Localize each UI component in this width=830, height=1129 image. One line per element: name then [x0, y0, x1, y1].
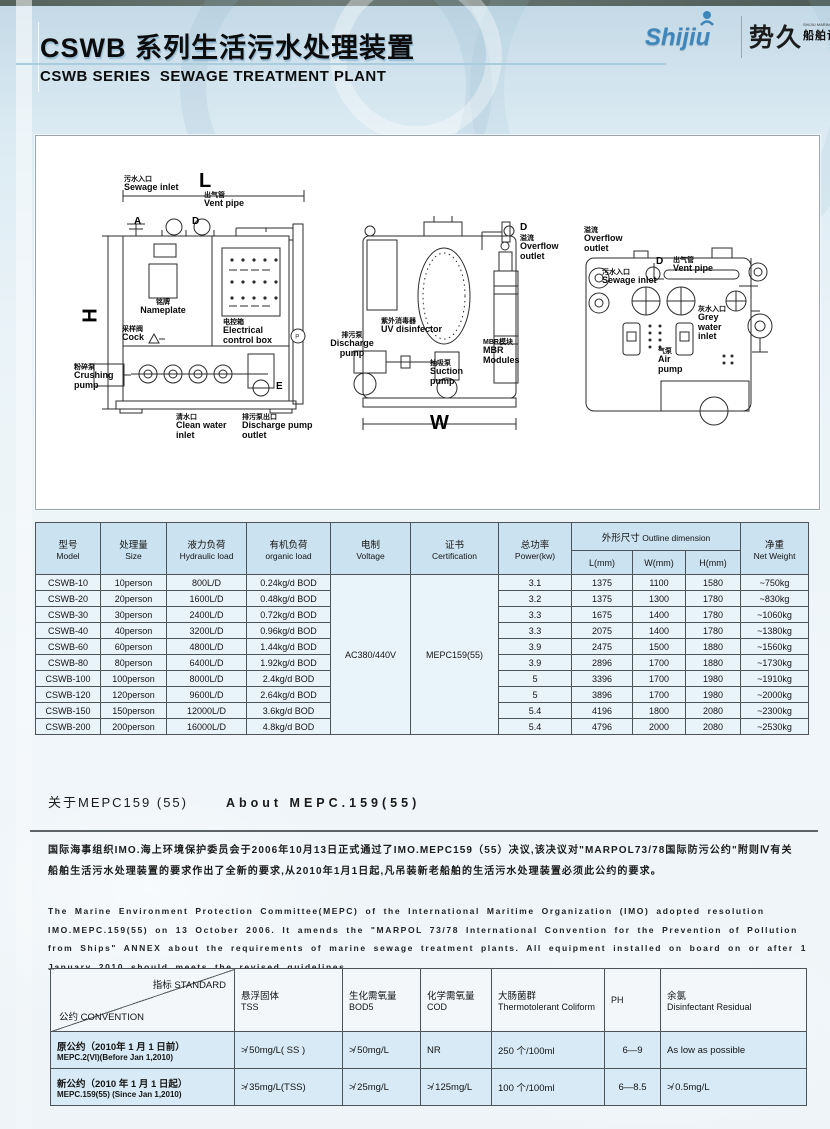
cell-model: CSWB-80	[36, 655, 101, 671]
cell-organic-load: 0.24kg/d BOD	[247, 575, 331, 591]
page-title-en: CSWB SERIES SEWAGE TREATMENT PLANT	[40, 68, 386, 85]
label-discharge-pump-side: 排污泵 Discharge pump	[321, 332, 383, 358]
standard-value-cell: As low as possible	[661, 1032, 807, 1069]
cell-model: CSWB-20	[36, 591, 101, 607]
cell-size: 10person	[101, 575, 167, 591]
cell-hydraulic-load: 16000L/D	[167, 719, 247, 735]
col-header-certification: 证书Certification	[411, 523, 499, 575]
col-header-voltage: 电制Voltage	[331, 523, 411, 575]
cell-hydraulic-load: 12000L/D	[167, 703, 247, 719]
col-header-coliform: 大肠菌群Thermotolerant Coliform	[492, 969, 605, 1032]
dim-a-label: A	[134, 216, 141, 227]
left-band	[16, 0, 32, 1129]
cell-length: 4196	[572, 703, 633, 719]
cell-power: 5.4	[499, 703, 572, 719]
cell-hydraulic-load: 3200L/D	[167, 623, 247, 639]
cell-size: 80person	[101, 655, 167, 671]
standard-value-cell: 6—9	[605, 1032, 661, 1069]
cell-length: 1675	[572, 607, 633, 623]
dim-d-label-front: D	[192, 216, 199, 227]
cell-hydraulic-load: 8000L/D	[167, 671, 247, 687]
cell-height: 1880	[686, 655, 741, 671]
cell-height: 1880	[686, 639, 741, 655]
standards-table-row: 新公约（2010 年 1 月 1 日起）MEPC.159(55) (Since …	[51, 1069, 807, 1106]
standard-value-cell: 100 个/100ml	[492, 1069, 605, 1106]
col-header-l-mm: L(mm)	[572, 551, 633, 575]
cell-hydraulic-load: 9600L/D	[167, 687, 247, 703]
mepc-paragraph-cn: 国际海事组织IMO.海上环境保护委员会于2006年10月13日正式通过了IMO.…	[48, 840, 800, 882]
label-air-pump: 气泵 Air pump	[658, 348, 696, 374]
label-overflow-outlet-top: 溢流 Overflow outlet	[584, 227, 644, 253]
cell-length: 3896	[572, 687, 633, 703]
mepc-heading-cn: 关于MEPC159 (55)	[48, 795, 188, 810]
cell-net-weight: ~1060kg	[741, 607, 809, 623]
cell-width: 1700	[633, 655, 686, 671]
cell-size: 20person	[101, 591, 167, 607]
cell-net-weight: ~1730kg	[741, 655, 809, 671]
page-title-cn: CSWB 系列生活污水处理装置	[40, 26, 415, 65]
label-vent-pipe-front: 出气管 Vent pipe	[204, 192, 244, 209]
cell-size: 120person	[101, 687, 167, 703]
cell-height: 1780	[686, 607, 741, 623]
logo-person-icon	[698, 10, 716, 26]
label-electrical-control-box: 电控箱 Electrical control box	[223, 319, 285, 345]
svg-text:P: P	[295, 335, 299, 341]
col-header-net-weight: 净重Net Weight	[741, 523, 809, 575]
standard-value-cell: NR	[421, 1032, 492, 1069]
cell-width: 1700	[633, 687, 686, 703]
label-grey-water-inlet: 灰水入口 Grey water inlet	[698, 306, 740, 342]
dim-e-label: E	[276, 381, 283, 392]
label-uv-disinfector: 紫外消毒器 UV disinfector	[381, 318, 466, 335]
standard-value-cell: ≯ 50mg/L( SS )	[235, 1032, 343, 1069]
standard-value-cell: 250 个/100ml	[492, 1032, 605, 1069]
cell-height: 1980	[686, 687, 741, 703]
cell-model: CSWB-200	[36, 719, 101, 735]
cell-certification: MEPC159(55)	[411, 575, 499, 735]
col-header-outline-dimension: 外形尺寸 Outline dimension	[572, 523, 741, 551]
label-cock: 采样阀 Cock	[122, 326, 144, 343]
standard-value-cell: ≯ 35mg/L(TSS)	[235, 1069, 343, 1106]
cell-power: 5.4	[499, 719, 572, 735]
cell-organic-load: 4.8kg/d BOD	[247, 719, 331, 735]
logo-subtitle: SHIJIU MARINE EQUIPT 船舶设备	[803, 22, 830, 43]
dim-d-label-top: D	[656, 256, 663, 267]
standard-value-cell: ≯ 0.5mg/L	[661, 1069, 807, 1106]
dim-length-label: L	[199, 170, 211, 193]
cell-net-weight: ~1560kg	[741, 639, 809, 655]
label-crushing-pump: 粉碎泵 Crushing pump	[74, 364, 126, 390]
cell-length: 2896	[572, 655, 633, 671]
cell-length: 4796	[572, 719, 633, 735]
cell-height: 2080	[686, 719, 741, 735]
cell-power: 3.3	[499, 623, 572, 639]
cell-height: 1580	[686, 575, 741, 591]
spec-table: 型号Model 处理量Size 液力负荷Hydraulic load 有机负荷o…	[35, 522, 809, 735]
standard-value-cell: 6—8.5	[605, 1069, 661, 1106]
cell-organic-load: 3.6kg/d BOD	[247, 703, 331, 719]
technical-drawings-panel: P	[35, 135, 820, 510]
cell-width: 1400	[633, 623, 686, 639]
cell-size: 200person	[101, 719, 167, 735]
cell-power: 3.2	[499, 591, 572, 607]
cell-power: 3.1	[499, 575, 572, 591]
mepc-rule	[30, 830, 818, 832]
header-rule	[16, 63, 666, 65]
dim-height-label: H	[80, 308, 103, 322]
cell-power: 3.3	[499, 607, 572, 623]
cell-model: CSWB-100	[36, 671, 101, 687]
standard-value-cell: ≯ 25mg/L	[343, 1069, 421, 1106]
cell-width: 2000	[633, 719, 686, 735]
logo-brand-cn: 势久	[749, 18, 803, 54]
standards-table-row: 原公约（2010年 1 月 1 日前）MEPC.2(VI)(Before Jan…	[51, 1032, 807, 1069]
col-header-model: 型号Model	[36, 523, 101, 575]
col-header-size: 处理量Size	[101, 523, 167, 575]
logo-brand-en: Shijiu	[645, 24, 710, 52]
cell-height: 2080	[686, 703, 741, 719]
cell-net-weight: ~2300kg	[741, 703, 809, 719]
cell-model: CSWB-120	[36, 687, 101, 703]
cell-organic-load: 1.92kg/d BOD	[247, 655, 331, 671]
cell-power: 3.9	[499, 655, 572, 671]
cell-size: 30person	[101, 607, 167, 623]
cell-length: 3396	[572, 671, 633, 687]
cell-length: 1375	[572, 591, 633, 607]
label-overflow-outlet-side: 溢流 Overflow outlet	[520, 235, 575, 261]
logo-subtitle-cn: 船舶设备	[803, 27, 830, 43]
cell-model: CSWB-30	[36, 607, 101, 623]
standard-value-cell: ≯ 125mg/L	[421, 1069, 492, 1106]
cell-length: 2075	[572, 623, 633, 639]
cell-organic-load: 0.48kg/d BOD	[247, 591, 331, 607]
cell-net-weight: ~1910kg	[741, 671, 809, 687]
cell-height: 1980	[686, 671, 741, 687]
col-header-ph: PH	[605, 969, 661, 1032]
cell-size: 40person	[101, 623, 167, 639]
label-sewage-inlet-top: 污水入口 Sewage inlet	[602, 269, 657, 286]
cell-organic-load: 2.4kg/d BOD	[247, 671, 331, 687]
cell-width: 1800	[633, 703, 686, 719]
label-discharge-pump-outlet: 排污泵出口 Discharge pump outlet	[242, 414, 327, 440]
cell-power: 3.9	[499, 639, 572, 655]
cell-length: 1375	[572, 575, 633, 591]
mepc-section-heading: 关于MEPC159 (55)About MEPC.159(55)	[48, 792, 420, 811]
cell-hydraulic-load: 800L/D	[167, 575, 247, 591]
cell-length: 2475	[572, 639, 633, 655]
cell-hydraulic-load: 6400L/D	[167, 655, 247, 671]
cell-model: CSWB-10	[36, 575, 101, 591]
header-divider	[38, 22, 39, 92]
col-header-hydraulic-load: 液力负荷Hydraulic load	[167, 523, 247, 575]
label-mbr-modules: MBR模块 MBR Modules	[483, 339, 538, 365]
cell-hydraulic-load: 1600L/D	[167, 591, 247, 607]
col-header-organic-load: 有机负荷organic load	[247, 523, 331, 575]
mepc-heading-en: About MEPC.159(55)	[226, 796, 420, 810]
cell-organic-load: 1.44kg/d BOD	[247, 639, 331, 655]
label-vent-pipe-top: 出气管 Vent pipe	[673, 257, 713, 274]
corner-header: 指标 STANDARD 公约 CONVENTION	[51, 969, 235, 1032]
cell-width: 1300	[633, 591, 686, 607]
cell-organic-load: 2.64kg/d BOD	[247, 687, 331, 703]
convention-row-label: 原公约（2010年 1 月 1 日前）MEPC.2(VI)(Before Jan…	[51, 1032, 235, 1069]
convention-row-label: 新公约（2010 年 1 月 1 日起）MEPC.159(55) (Since …	[51, 1069, 235, 1106]
cell-net-weight: ~750kg	[741, 575, 809, 591]
cell-width: 1500	[633, 639, 686, 655]
col-header-w-mm: W(mm)	[633, 551, 686, 575]
col-header-power: 总功率Power(kw)	[499, 523, 572, 575]
cell-width: 1700	[633, 671, 686, 687]
cell-width: 1100	[633, 575, 686, 591]
cell-height: 1780	[686, 623, 741, 639]
logo-separator	[741, 16, 742, 58]
cell-height: 1780	[686, 591, 741, 607]
cell-size: 100person	[101, 671, 167, 687]
dim-width-label: W	[430, 412, 449, 435]
cell-model: CSWB-60	[36, 639, 101, 655]
col-header-residual: 余氯Disinfectant Residual	[661, 969, 807, 1032]
cell-model: CSWB-150	[36, 703, 101, 719]
top-band	[0, 0, 830, 6]
cell-size: 60person	[101, 639, 167, 655]
label-sewage-inlet-front: 污水入口 Sewage inlet	[124, 176, 179, 193]
cell-model: CSWB-40	[36, 623, 101, 639]
cell-hydraulic-load: 2400L/D	[167, 607, 247, 623]
corner-convention-label: 公约 CONVENTION	[59, 1009, 144, 1023]
cell-hydraulic-load: 4800L/D	[167, 639, 247, 655]
cell-net-weight: ~2530kg	[741, 719, 809, 735]
mepc-paragraph-en: The Marine Environment Protection Commit…	[48, 902, 808, 976]
cell-net-weight: ~1380kg	[741, 623, 809, 639]
company-logo: Shijiu 势久 SHIJIU MARINE EQUIPT 船舶设备	[645, 12, 820, 62]
cell-width: 1400	[633, 607, 686, 623]
cell-organic-load: 0.96kg/d BOD	[247, 623, 331, 639]
spec-table-row: CSWB-1010person800L/D0.24kg/d BODAC380/4…	[36, 575, 809, 591]
cell-net-weight: ~830kg	[741, 591, 809, 607]
label-clean-water-inlet: 清水口 Clean water inlet	[176, 414, 238, 440]
cell-power: 5	[499, 671, 572, 687]
page: CSWB 系列生活污水处理装置 CSWB SERIES SEWAGE TREAT…	[0, 0, 830, 1129]
col-header-cod: 化学需氧量COD	[421, 969, 492, 1032]
label-suction-pump: 抽吸泵 Suction pump	[430, 360, 480, 386]
cell-net-weight: ~2000kg	[741, 687, 809, 703]
dim-d-label-side: D	[520, 222, 527, 233]
cell-power: 5	[499, 687, 572, 703]
cell-size: 150person	[101, 703, 167, 719]
cell-organic-load: 0.72kg/d BOD	[247, 607, 331, 623]
label-nameplate: 铭牌 Nameplate	[132, 299, 194, 316]
col-header-h-mm: H(mm)	[686, 551, 741, 575]
col-header-tss: 悬浮固体TSS	[235, 969, 343, 1032]
standards-table: 指标 STANDARD 公约 CONVENTION 悬浮固体TSS 生化需氧量B…	[50, 968, 807, 1106]
cell-voltage: AC380/440V	[331, 575, 411, 735]
corner-standard-label: 指标 STANDARD	[153, 977, 226, 991]
standard-value-cell: ≯ 50mg/L	[343, 1032, 421, 1069]
col-header-bod5: 生化需氧量BOD5	[343, 969, 421, 1032]
